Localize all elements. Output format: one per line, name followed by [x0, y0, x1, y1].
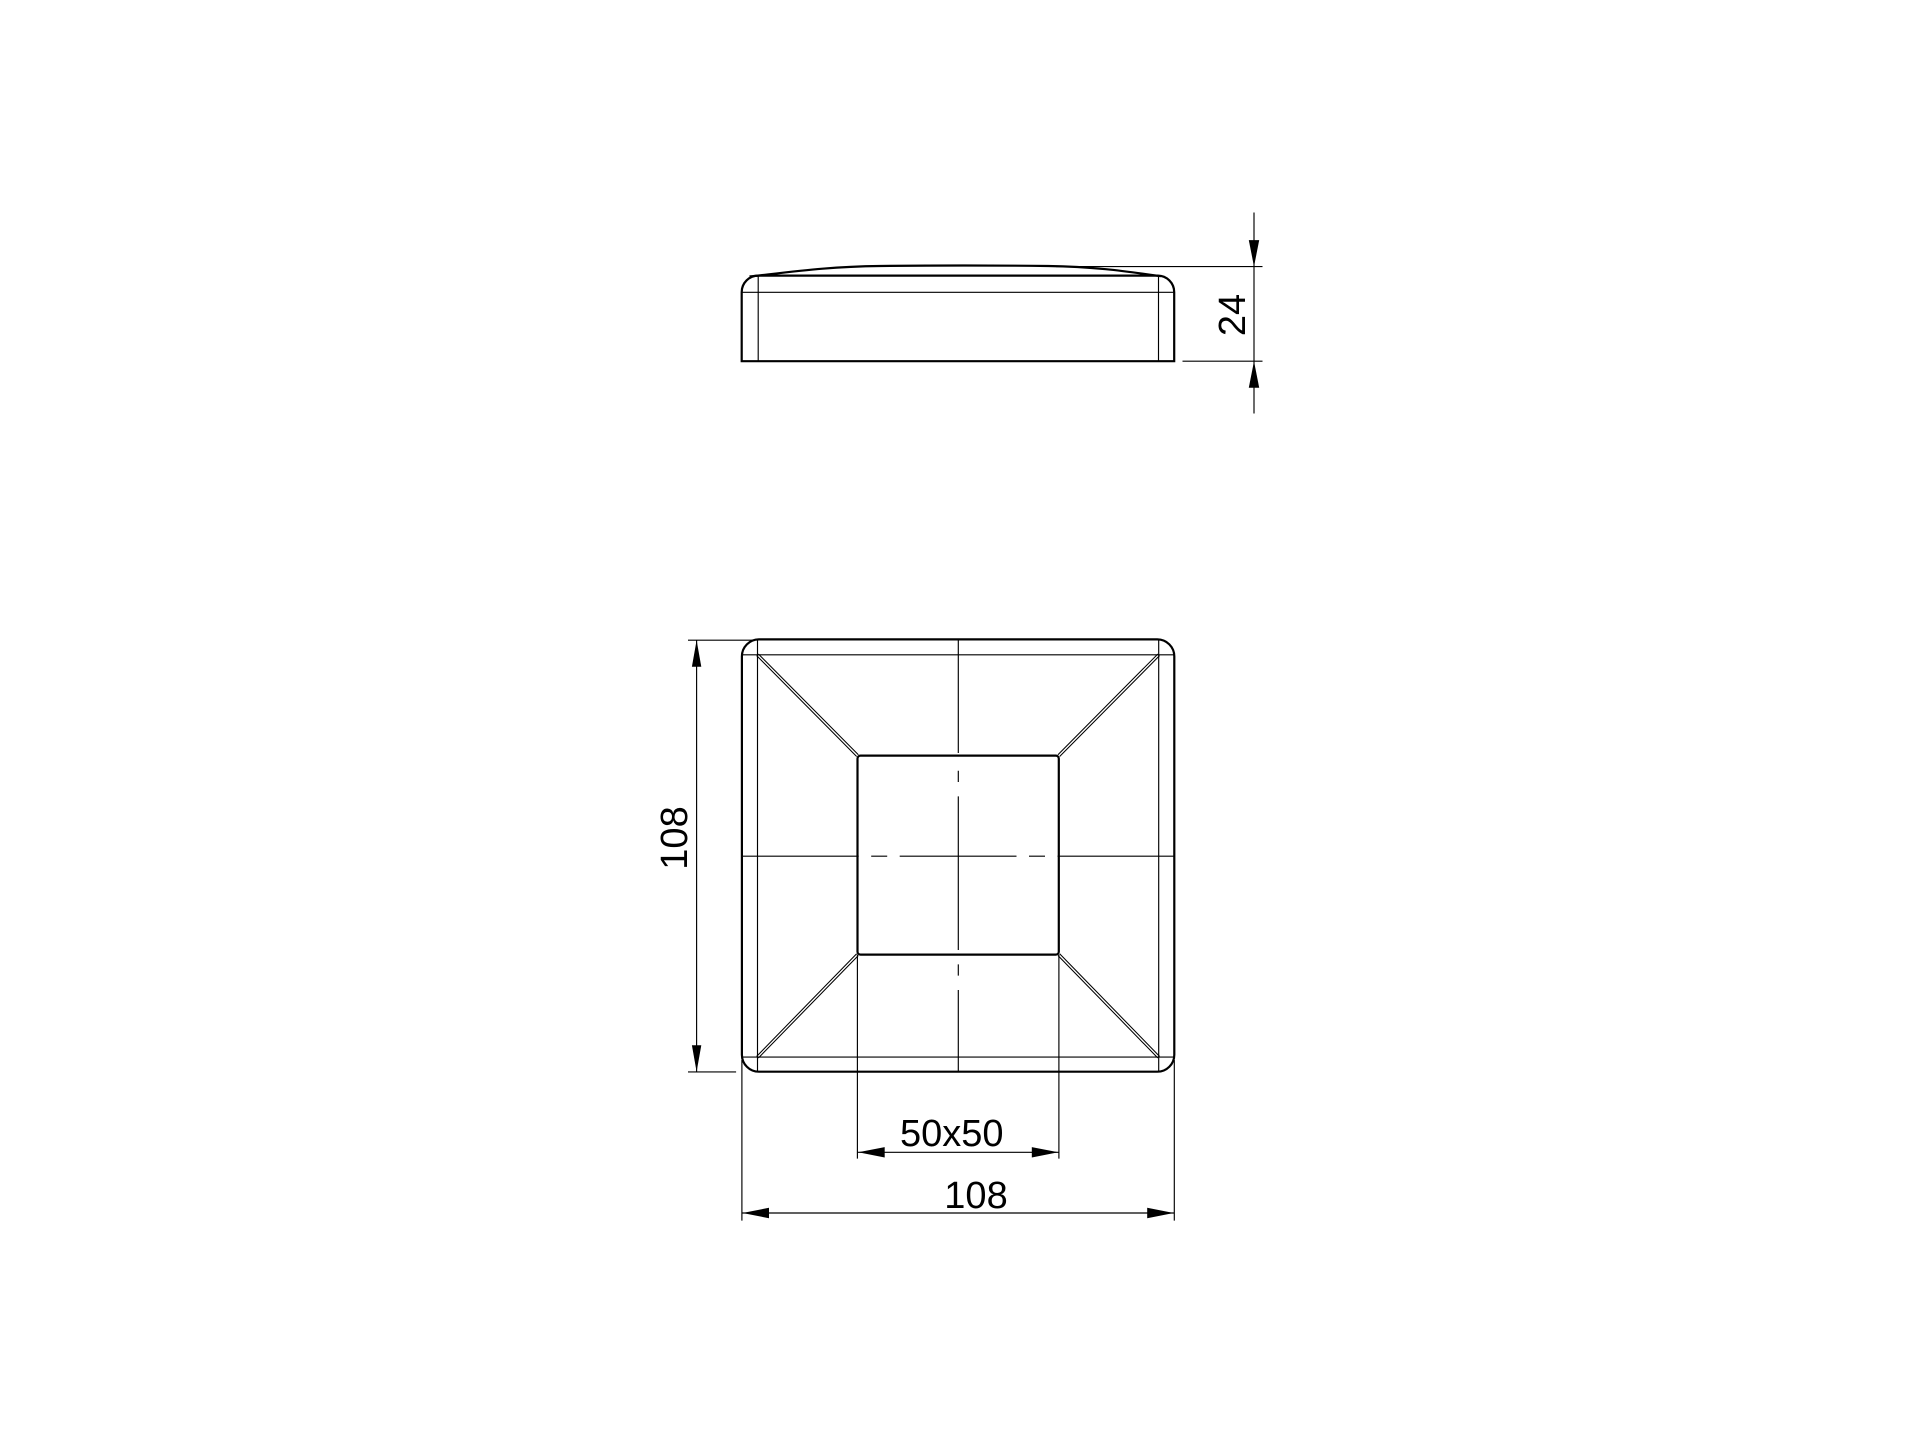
svg-text:108: 108 [654, 806, 696, 869]
svg-text:108: 108 [944, 1175, 1007, 1217]
svg-text:50x50: 50x50 [900, 1113, 1004, 1155]
svg-text:24: 24 [1212, 294, 1254, 336]
